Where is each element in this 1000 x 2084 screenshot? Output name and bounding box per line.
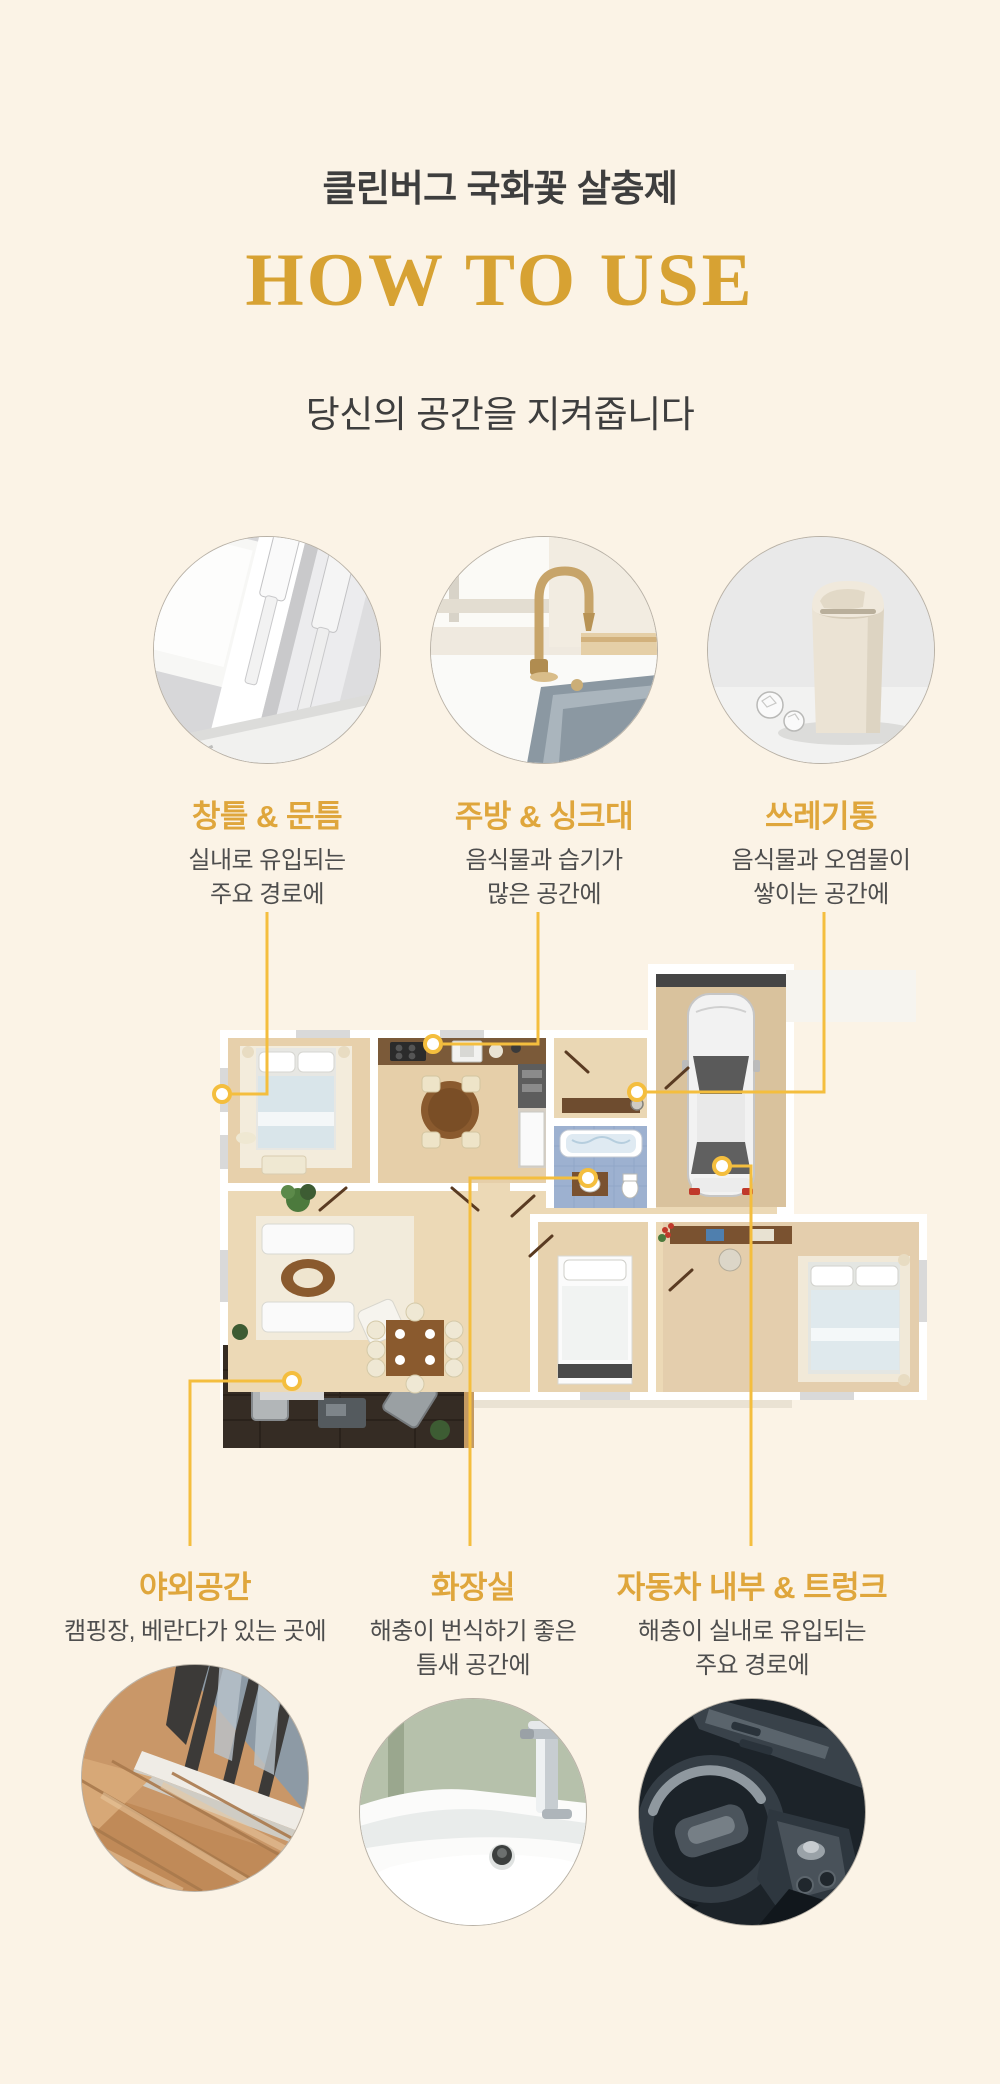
brand-title: 클린버그 국화꽃 살충제: [0, 158, 1000, 212]
feature-description: 해충이 실내로 유입되는 주요 경로에: [602, 1615, 902, 1683]
feature-description: 음식물과 습기가 많은 공간에: [394, 844, 694, 912]
desc-line: 실내로 유입되는: [117, 844, 417, 878]
feature-label: 야외공간: [45, 1562, 345, 1607]
feature-label: 주방 & 싱크대: [394, 791, 694, 836]
feature-kitchen-sink: 주방 & 싱크대 음식물과 습기가 많은 공간에: [394, 537, 694, 912]
feature-description: 음식물과 오염물이 쌓이는 공간에: [671, 844, 971, 912]
feature-label: 화장실: [323, 1562, 623, 1607]
desc-line: 캠핑장, 베란다가 있는 곳에: [45, 1615, 345, 1649]
page-title: HOW TO USE: [0, 238, 1000, 324]
desc-line: 많은 공간에: [394, 878, 694, 912]
desc-line: 주요 경로에: [602, 1649, 902, 1683]
feature-bathroom: 화장실 해충이 번식하기 좋은 틈새 공간에: [323, 1562, 623, 1925]
feature-description: 해충이 번식하기 좋은 틈새 공간에: [323, 1615, 623, 1683]
desc-line: 해충이 번식하기 좋은: [323, 1615, 623, 1649]
page-subtitle: 당신의 공간을 지켜줍니다: [0, 384, 1000, 438]
car-interior-photo: [639, 1699, 865, 1925]
kitchen-sink-photo: [431, 537, 657, 763]
desc-line: 음식물과 습기가: [394, 844, 694, 878]
feature-trash-bin: 쓰레기통 음식물과 오염물이 쌓이는 공간에: [671, 537, 971, 912]
apartment-floor-plan: [200, 960, 960, 1460]
desc-line: 해충이 실내로 유입되는: [602, 1615, 902, 1649]
feature-window-frame: 창틀 & 문틈 실내로 유입되는 주요 경로에: [117, 537, 417, 912]
feature-label: 쓰레기통: [671, 791, 971, 836]
feature-description: 캠핑장, 베란다가 있는 곳에: [45, 1615, 345, 1649]
desc-line: 주요 경로에: [117, 878, 417, 912]
desc-line: 음식물과 오염물이: [671, 844, 971, 878]
feature-label: 창틀 & 문틈: [117, 791, 417, 836]
balcony-photo: [82, 1665, 308, 1891]
window-frame-photo: [154, 537, 380, 763]
bathroom-sink-photo: [360, 1699, 586, 1925]
feature-label: 자동차 내부 & 트렁크: [602, 1562, 902, 1607]
feature-description: 실내로 유입되는 주요 경로에: [117, 844, 417, 912]
trash-bin-photo: [708, 537, 934, 763]
desc-line: 틈새 공간에: [323, 1649, 623, 1683]
feature-car-interior: 자동차 내부 & 트렁크 해충이 실내로 유입되는 주요 경로에: [602, 1562, 902, 1925]
desc-line: 쌓이는 공간에: [671, 878, 971, 912]
feature-outdoor-space: 야외공간 캠핑장, 베란다가 있는 곳에: [45, 1562, 345, 1891]
infographic-page: 클린버그 국화꽃 살충제 HOW TO USE 당신의 공간을 지켜줍니다: [0, 0, 1000, 2084]
